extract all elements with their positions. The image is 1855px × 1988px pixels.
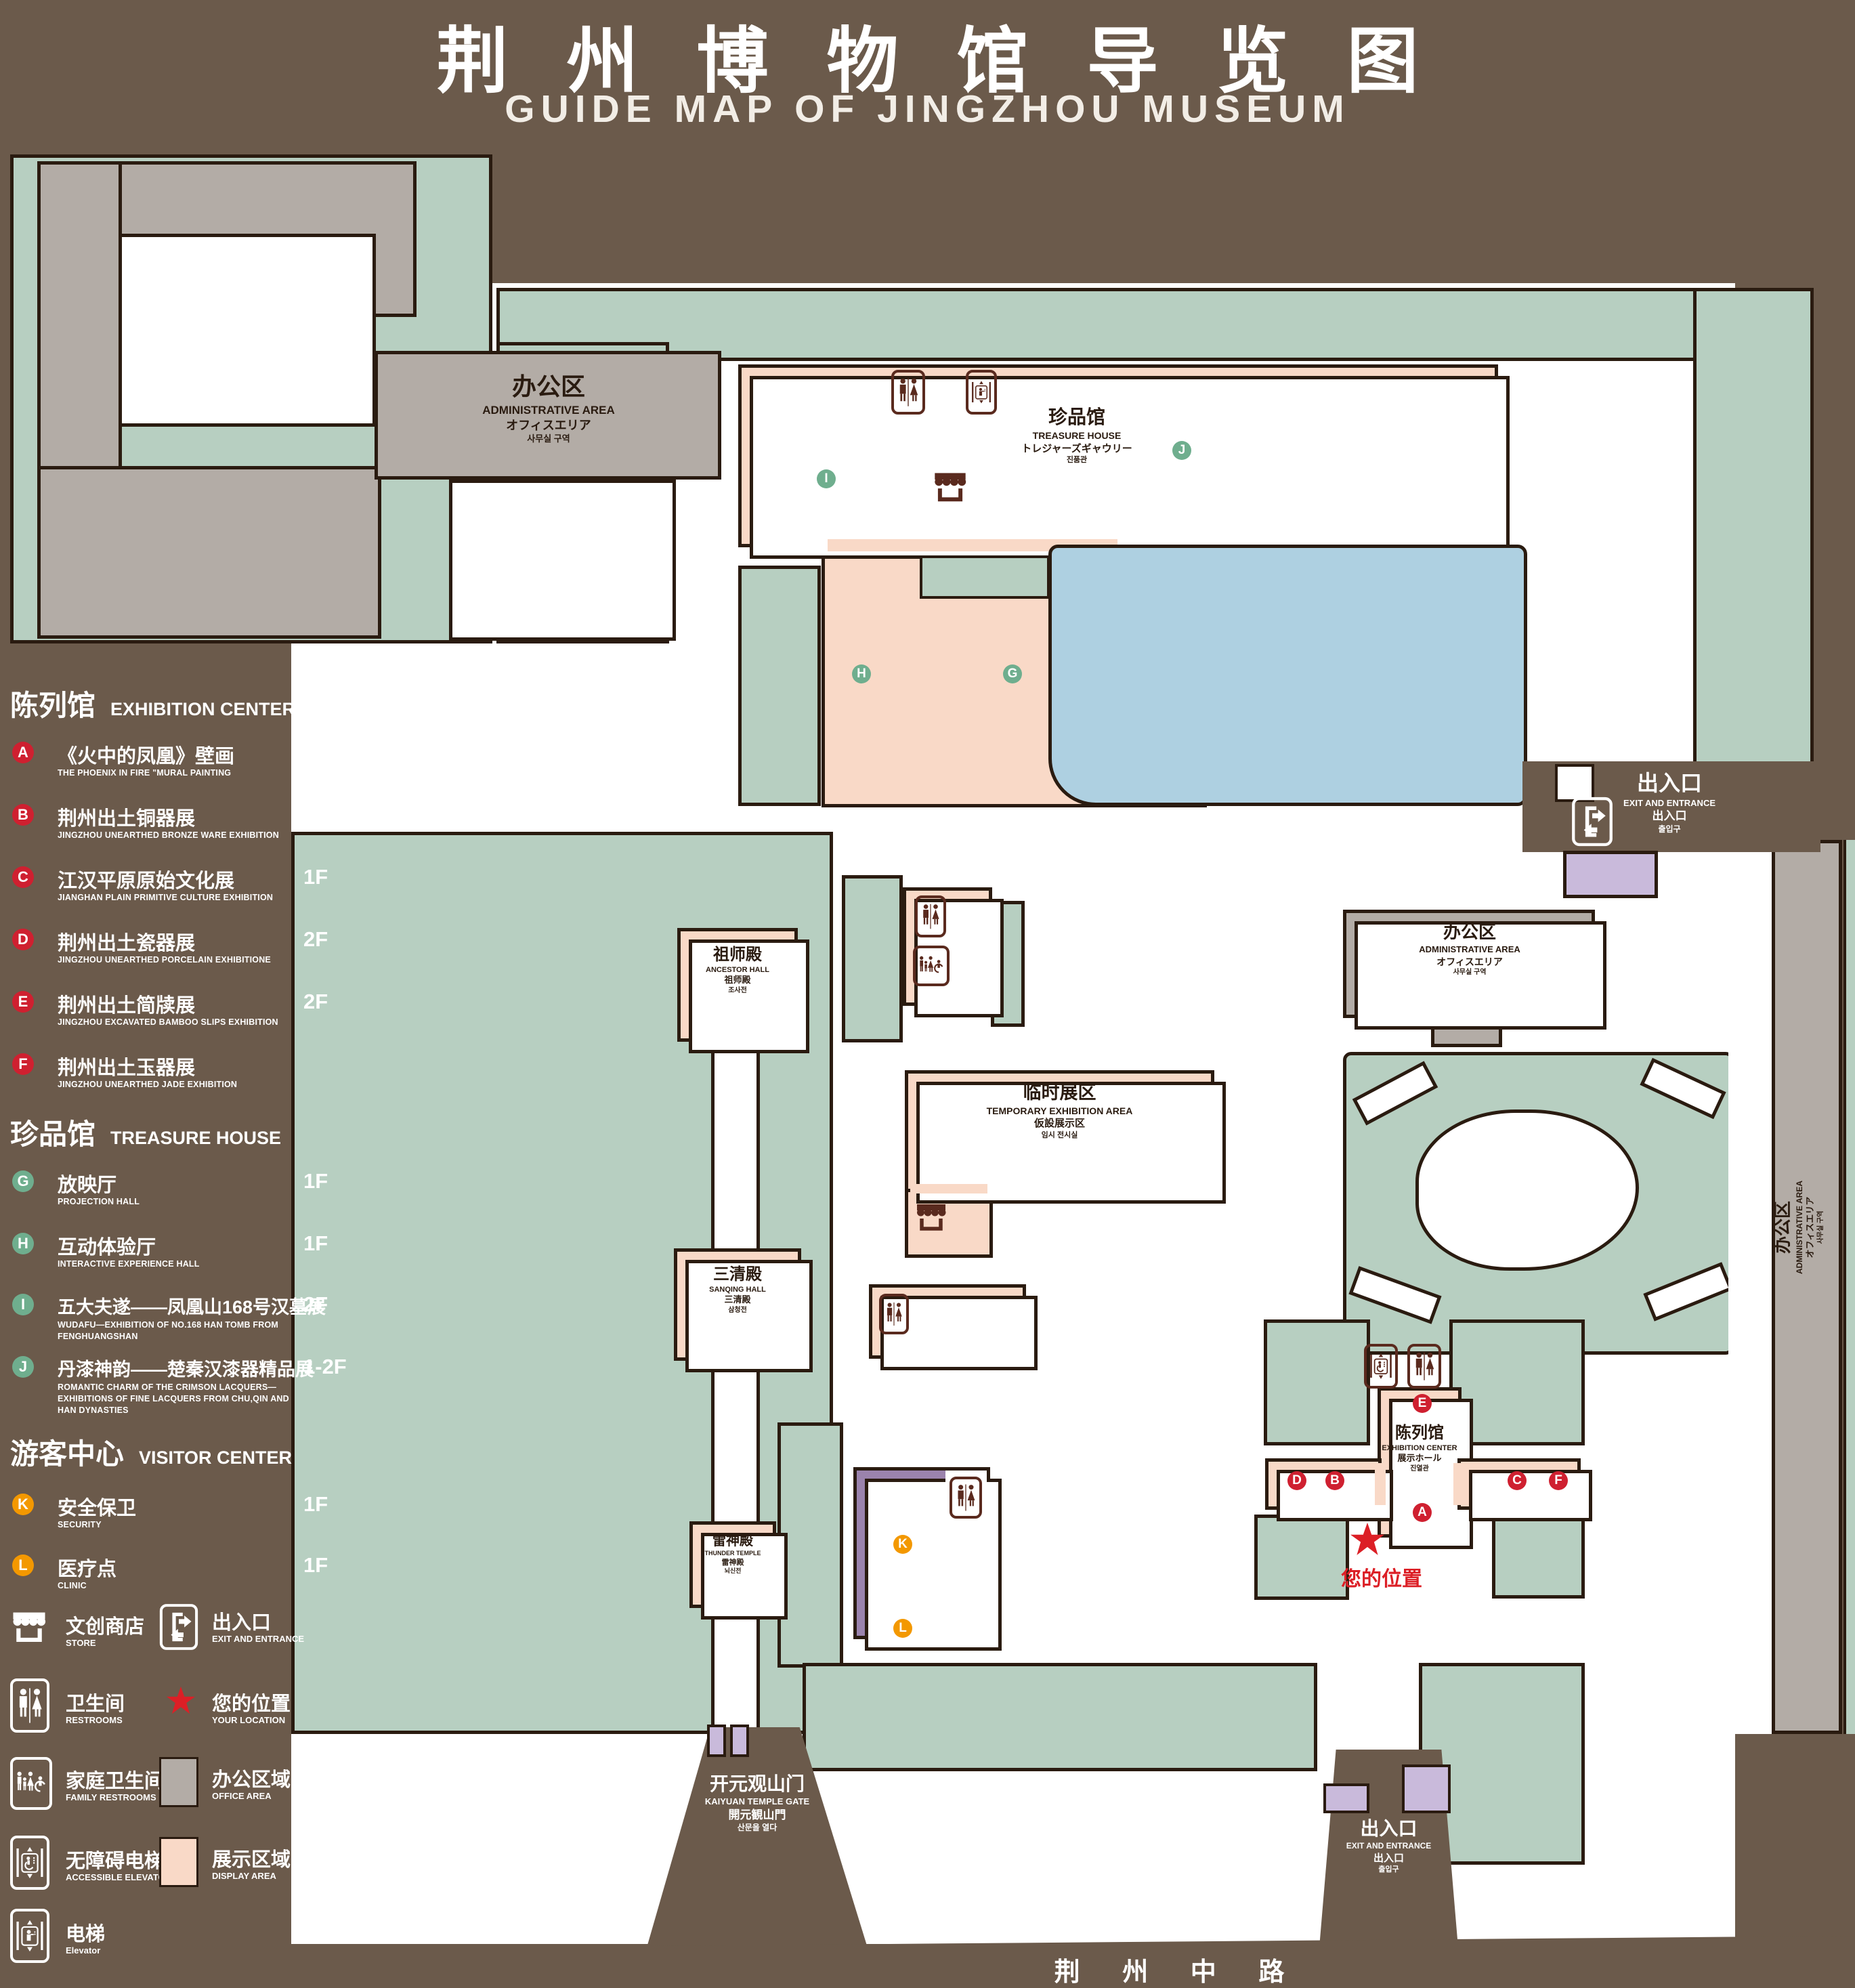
office-area-swatch [159,1757,198,1807]
exhibition-west-arm [1265,1458,1382,1510]
page-subtitle: GUIDE MAP OF JINGZHOU MUSEUM [0,87,1855,131]
family-restroom-icon [10,1757,52,1810]
exit-icon [159,1603,198,1651]
elevator-icon [966,370,997,415]
item-floor: 2F [303,990,328,1014]
badge-I: I [12,1294,34,1315]
symbol-zh: 无障碍电梯 [66,1845,164,1874]
marker-L: L [893,1619,912,1638]
visitor-kr: 관광객 센터 [859,1601,985,1610]
accessible-elevator-icon [1364,1344,1398,1389]
marker-A: A [1413,1503,1432,1522]
treasure-house-label: 珍品馆 TREASURE HOUSE トレジャーズギャウリー 진품관 [996,405,1158,465]
item-floor: 1F [303,1492,328,1517]
store-icon [964,1555,992,1593]
item-floor: 1F [303,1553,328,1578]
sanqing-jp: 三清殿 [677,1294,798,1306]
your-location-star-icon [166,1687,196,1715]
kaiyuan-gate-label: 开元观山门 KAIYUAN TEMPLE GATE 開元観山門 산문을 열다 [645,1772,869,1834]
store-icon [10,1607,48,1649]
admin-nw-courtyard-2 [449,480,676,641]
exit-bottom-kr: 출입구 [1319,1865,1458,1874]
admin-nw-courtyard [119,234,376,427]
sanqing-kr: 삼청전 [677,1306,798,1315]
badge-J: J [12,1356,34,1378]
section-zh: 游客中心 [10,1438,124,1470]
lawn-top-strip [496,288,1751,361]
lawn-east-sliver [1843,840,1855,1734]
exhibition-kr: 진열관 [1378,1464,1462,1473]
gate-zh: 开元观山门 [645,1772,869,1796]
item-floor: 1F [303,803,328,827]
item-zh: 荆州出土简牍展 [58,990,195,1018]
admin-nw-en: ADMINISTRATIVE AREA [400,403,698,418]
gate-kr: 산문을 열다 [645,1823,869,1834]
legend-section-exhibition: 陈列馆EXHIBITION CENTER [10,683,295,724]
temporary-en: TEMPORARY EXHIBITION AREA [912,1105,1208,1117]
badge-C: C [12,866,34,888]
gate-jp: 開元観山門 [645,1808,869,1823]
gate-pillar [730,1725,749,1757]
admin-nw-label: 办公区 ADMINISTRATIVE AREA オフィスエリア 사무실 구역 [400,371,698,445]
exhibition-center-label: 陈列馆 EXHIBITION CENTER 展示ホール 진열관 [1378,1422,1462,1473]
section-zh: 珍品馆 [10,1118,95,1150]
admin-nw-zh: 办公区 [400,371,698,403]
section-en: EXHIBITION CENTER [110,699,295,719]
restroom-icon [1407,1344,1441,1389]
badge-L: L [12,1555,34,1576]
marker-J: J [1172,441,1191,460]
exhibition-zh: 陈列馆 [1378,1422,1462,1443]
badge-D: D [12,929,34,950]
treasure-en: TREASURE HOUSE [996,429,1158,442]
sanqing-zh: 三清殿 [677,1264,798,1285]
exit-bottom-jp: 出入口 [1319,1852,1458,1865]
badge-E: E [12,991,34,1013]
marker-F: F [1549,1471,1568,1490]
temporary-zh: 临时展区 [912,1081,1208,1105]
restroom-icon [891,370,925,415]
section-zh: 陈列馆 [10,690,95,721]
sanqing-en: SANQING HALL [677,1285,798,1294]
exit-bottom-label: 出入口 EXIT AND ENTRANCE 出入口 출입구 [1319,1817,1458,1875]
your-location-label: 您的位置 [1324,1562,1439,1592]
symbol-en: OFFICE AREA [212,1791,272,1801]
admin-mid-en: ADMINISTRATIVE AREA [1355,944,1585,956]
ticket-booth [1323,1783,1369,1813]
store-icon [932,466,968,509]
item-en: CLINIC [58,1580,315,1592]
elevator-icon [10,1909,49,1963]
item-floor: 2F [303,927,328,952]
lawn-right-top [1693,288,1814,769]
admin-right-en: ADMINISTRATIVE AREA [1795,1105,1806,1349]
temporary-exhibition-label: 临时展区 TEMPORARY EXHIBITION AREA 仮設展示区 임시 … [912,1081,1208,1140]
badge-A: A [12,742,34,763]
item-en: INTERACTIVE EXPERIENCE HALL [58,1259,315,1270]
item-en: JINGZHOU EXCAVATED BAMBOO SLIPS EXHIBITI… [58,1017,315,1028]
symbol-zh: 电梯 [66,1918,105,1947]
lawn-exh-br [1492,1516,1585,1599]
symbol-zh: 办公区域 [212,1764,291,1792]
item-zh: 丹漆神韵——楚秦汉漆器精品展 [58,1355,314,1381]
item-en: JIANGHAN PLAIN PRIMITIVE CULTURE EXHIBIT… [58,892,315,904]
item-floor: 1F [303,865,328,889]
ancestor-en: ANCESTOR HALL [680,965,795,975]
admin-nw-bottom-wing [37,466,381,639]
item-floor: 1-2F [303,1355,347,1379]
marker-H: H [852,664,871,683]
axis-corridor [711,1045,760,1734]
display-area-swatch [159,1837,198,1887]
exhibition-jp: 展示ホール [1378,1453,1462,1464]
legend-section-treasure: 珍品馆TREASURE HOUSE [10,1112,281,1153]
symbol-zh: 卫生间 [66,1688,125,1716]
marker-B: B [1325,1471,1344,1490]
exit-bottom-en: EXIT AND ENTRANCE [1319,1841,1458,1852]
pond [1048,545,1527,806]
section-en: TREASURE HOUSE [110,1128,281,1148]
symbol-en: RESTROOMS [66,1715,123,1725]
lawn-wing-left [738,566,821,806]
badge-H: H [12,1233,34,1254]
item-zh: 荆州出土铜器展 [58,803,195,831]
thunder-kr: 뇌신전 [692,1567,773,1575]
item-zh: 《火中的凤凰》壁画 [58,740,234,769]
admin-nw-jp: オフィスエリア [400,418,698,433]
gate-pillar [707,1725,726,1757]
thunder-en: THUNDER TEMPLE [692,1550,773,1558]
legend-section-visitor: 游客中心VISITOR CENTER [10,1431,292,1473]
guide-map-poster: 荆州博物馆导览图 GUIDE MAP OF JINGZHOU MUSEUM 办公… [0,0,1855,1983]
ancestor-hall-label: 祖师殿 ANCESTOR HALL 祖师殿 조사전 [680,944,795,995]
item-zh: 江汉平原原始文化展 [58,865,234,893]
exit-bottom-zh: 出入口 [1319,1817,1458,1841]
symbol-zh: 展示区域 [212,1844,291,1872]
thunder-jp: 雷神殿 [692,1558,773,1567]
item-floor: 2F [303,1292,328,1317]
admin-right-label: 办公区 ADMINISTRATIVE AREA オフィスエリア 사무실 구역 [1772,1105,1842,1349]
admin-nw-kr: 사무실 구역 [400,433,698,445]
restroom-icon [950,1477,982,1519]
store-icon [914,1198,948,1238]
symbol-zh: 出入口 [212,1607,271,1635]
symbol-en: STORE [66,1638,96,1648]
gate-en: KAIYUAN TEMPLE GATE [645,1796,869,1808]
thunder-zh: 雷神殿 [692,1532,773,1550]
temporary-jp: 仮設展示区 [912,1117,1208,1130]
east-walkway [1728,840,1773,1734]
badge-B: B [12,804,34,826]
ancestor-jp: 祖师殿 [680,975,795,986]
road-label: 荆 州 中 路 [501,1951,1855,1988]
item-floor: 1F [303,1231,328,1256]
item-zh: 医疗点 [58,1553,116,1582]
symbol-en: FAMILY RESTROOMS [66,1792,156,1802]
item-zh: 荆州出土玉器展 [58,1052,195,1080]
marker-G: G [1003,664,1022,683]
item-zh: 荆州出土瓷器展 [58,927,195,956]
exit-right-jp: 出入口 [1619,809,1720,824]
restroom-icon [10,1678,49,1733]
restroom-icon [915,895,946,937]
item-en: JINGZHOU UNEARTHED BRONZE WARE EXHIBITIO… [58,830,315,841]
treasure-kr: 진품관 [996,455,1158,465]
item-en: WUDAFU—EXHIBITION OF NO.168 HAN TOMB FRO… [58,1319,315,1342]
item-en: THE PHOENIX IN FIRE "MURAL PAINTING [58,767,315,779]
lawn-south-band [803,1663,1317,1771]
family-restroom-icon [913,946,950,986]
item-zh: 互动体验厅 [58,1231,156,1260]
item-en: ROMANTIC CHARM OF THE CRIMSON LACQUERS—E… [58,1382,308,1416]
sanqing-hall-label: 三清殿 SANQING HALL 三清殿 삼청전 [677,1264,798,1315]
exit-right-en: EXIT AND ENTRANCE [1619,798,1720,809]
section-en: VISITOR CENTER [139,1447,292,1468]
exit-right-label: 出入口 EXIT AND ENTRANCE 出入口 출입구 [1619,769,1720,834]
badge-K: K [12,1494,34,1515]
item-zh: 安全保卫 [58,1492,136,1521]
lawn-center-1 [842,875,903,1042]
symbol-en: Elevator [66,1945,100,1955]
ancestor-kr: 조사전 [680,986,795,995]
temporary-kr: 임시 전시실 [912,1130,1208,1140]
marker-C: C [1508,1471,1527,1490]
item-en: JINGZHOU UNEARTHED JADE EXHIBITION [58,1079,315,1091]
thunder-temple-label: 雷神殿 THUNDER TEMPLE 雷神殿 뇌신전 [692,1532,773,1575]
item-zh: 放映厅 [58,1169,116,1198]
treasure-jp: トレジャーズギャウリー [996,442,1158,456]
lawn-exh-tl [1264,1319,1370,1445]
item-en: JINGZHOU UNEARTHED PORCELAIN EXHIBITIONE [58,954,315,966]
admin-right-jp: オフィスエリア [1805,1105,1816,1349]
treasure-zh: 珍品馆 [996,405,1158,429]
ancestor-zh: 祖师殿 [680,944,795,965]
admin-mid-jp: オフィスエリア [1355,956,1585,968]
admin-right-kr: 사무실 구역 [1816,1105,1825,1349]
item-zh: 五大夫遂——凤凰山168号汉墓展 [58,1292,326,1319]
symbol-zh: 您的位置 [212,1688,291,1716]
temporary-seam [910,1184,987,1193]
symbol-en: EXIT AND ENTRANCE [212,1634,304,1644]
exit-right-kr: 출입구 [1619,824,1720,835]
symbol-en: DISPLAY AREA [212,1871,276,1881]
admin-right-zh: 办公区 [1772,1105,1795,1349]
item-en: SECURITY [58,1519,315,1531]
marker-D: D [1287,1471,1306,1490]
restroom-icon [879,1294,909,1334]
marker-K: K [893,1535,912,1554]
your-location-star-icon [1350,1523,1385,1557]
admin-mid-zh: 办公区 [1355,921,1585,944]
accessible-elevator-icon [10,1836,49,1890]
symbol-en: YOUR LOCATION [212,1715,285,1725]
exit-icon [1571,797,1613,847]
exit-right-zh: 出入口 [1619,769,1720,798]
marker-I: I [817,469,836,488]
treasure-courtyard-planter [920,555,1050,599]
marker-E: E [1413,1394,1432,1413]
badge-F: F [12,1053,34,1075]
exhibition-en: EXHIBITION CENTER [1378,1443,1462,1453]
item-floor: 1F [303,1169,328,1193]
symbol-zh: 文创商店 [66,1611,144,1639]
item-floor: 1F [303,740,328,765]
badge-G: G [12,1170,34,1192]
symbol-en: ACCESSIBLE ELEVATOR [66,1872,171,1882]
ticket-booth [1402,1764,1451,1813]
symbol-zh: 家庭卫生间 [66,1765,164,1794]
item-en: PROJECTION HALL [58,1196,315,1208]
admin-mid-label: 办公区 ADMINISTRATIVE AREA オフィスエリア 사무실 구역 [1355,921,1585,977]
admin-mid-kr: 사무실 구역 [1355,968,1585,977]
shuttle-stop [1563,851,1658,898]
